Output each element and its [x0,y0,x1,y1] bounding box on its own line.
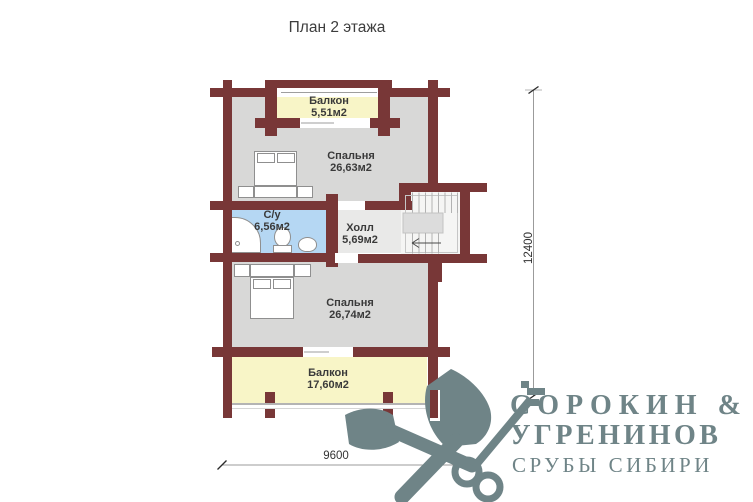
nightstand [234,264,250,277]
room-area: 5,69м2 [305,234,415,246]
nightstand [294,264,311,277]
logo-company-name-line2: УГРЕНИНОВ [510,420,721,452]
key-tooth [521,381,529,388]
door-opening [335,253,358,263]
wall-segment [370,118,400,128]
wall-segment [255,118,300,128]
door-opening [335,118,370,128]
room-label-bedroom-top: Спальня 26,63м2 [296,150,406,174]
wall-segment [210,253,335,262]
dimension-tick [468,461,477,470]
room-area: 5,51м2 [274,107,384,119]
axe-handle [402,441,456,497]
room-name: С/у [217,209,327,221]
key-bow [476,475,500,499]
wall-segment [399,183,487,192]
shower-drain [235,241,240,246]
wall-segment [212,347,303,357]
room-label-hall: Холл 5,69м2 [305,222,415,246]
bed-foot [254,186,297,198]
wall-segment [265,80,392,88]
pillow [273,279,291,289]
dimension-tick [218,461,227,470]
room-label-bedroom-bottom: Спальня 26,74м2 [295,297,405,321]
balcony-rail-band [232,403,427,409]
wall-segment [223,80,232,418]
wall-segment [430,254,442,282]
room-name: Холл [305,222,415,234]
wall-segment [460,183,470,263]
door-opening [330,347,353,357]
room-area: 26,74м2 [295,309,405,321]
room-area: 26,63м2 [296,162,406,174]
room-area: 17,60м2 [273,379,383,391]
room-name: Спальня [296,150,406,162]
room-label-balcony-bottom: Балкон 17,60м2 [273,367,383,391]
pillow [257,153,275,163]
pillow [253,279,271,289]
room-name: Спальня [295,297,405,309]
logo-tagline: СРУБЫ СИБИРИ [512,453,713,478]
wall-segment [353,347,450,357]
floor-plan-page: План 2 этажа [0,0,753,502]
room-name: Балкон [273,367,383,379]
logo-company-name-line1: СОРОКИН & [510,390,748,422]
nightstand [238,186,254,198]
axe-handle [390,430,472,466]
key-bow [455,460,479,484]
window-band [303,347,330,357]
window-band [300,118,335,128]
toilet-tank [273,245,292,253]
page-title: План 2 этажа [289,19,386,37]
dimension-height-label: 12400 [523,218,535,278]
bed-head [250,264,294,277]
door-opening [338,201,365,210]
dimension-tick [529,87,539,94]
pillow [277,153,295,163]
wall-segment [428,80,438,183]
dimension-width-label: 9600 [300,450,372,462]
nightstand [297,186,313,198]
room-name: Балкон [274,95,384,107]
wall-segment [358,254,487,263]
room-label-balcony-top: Балкон 5,51м2 [274,95,384,119]
wall-segment [428,263,438,418]
